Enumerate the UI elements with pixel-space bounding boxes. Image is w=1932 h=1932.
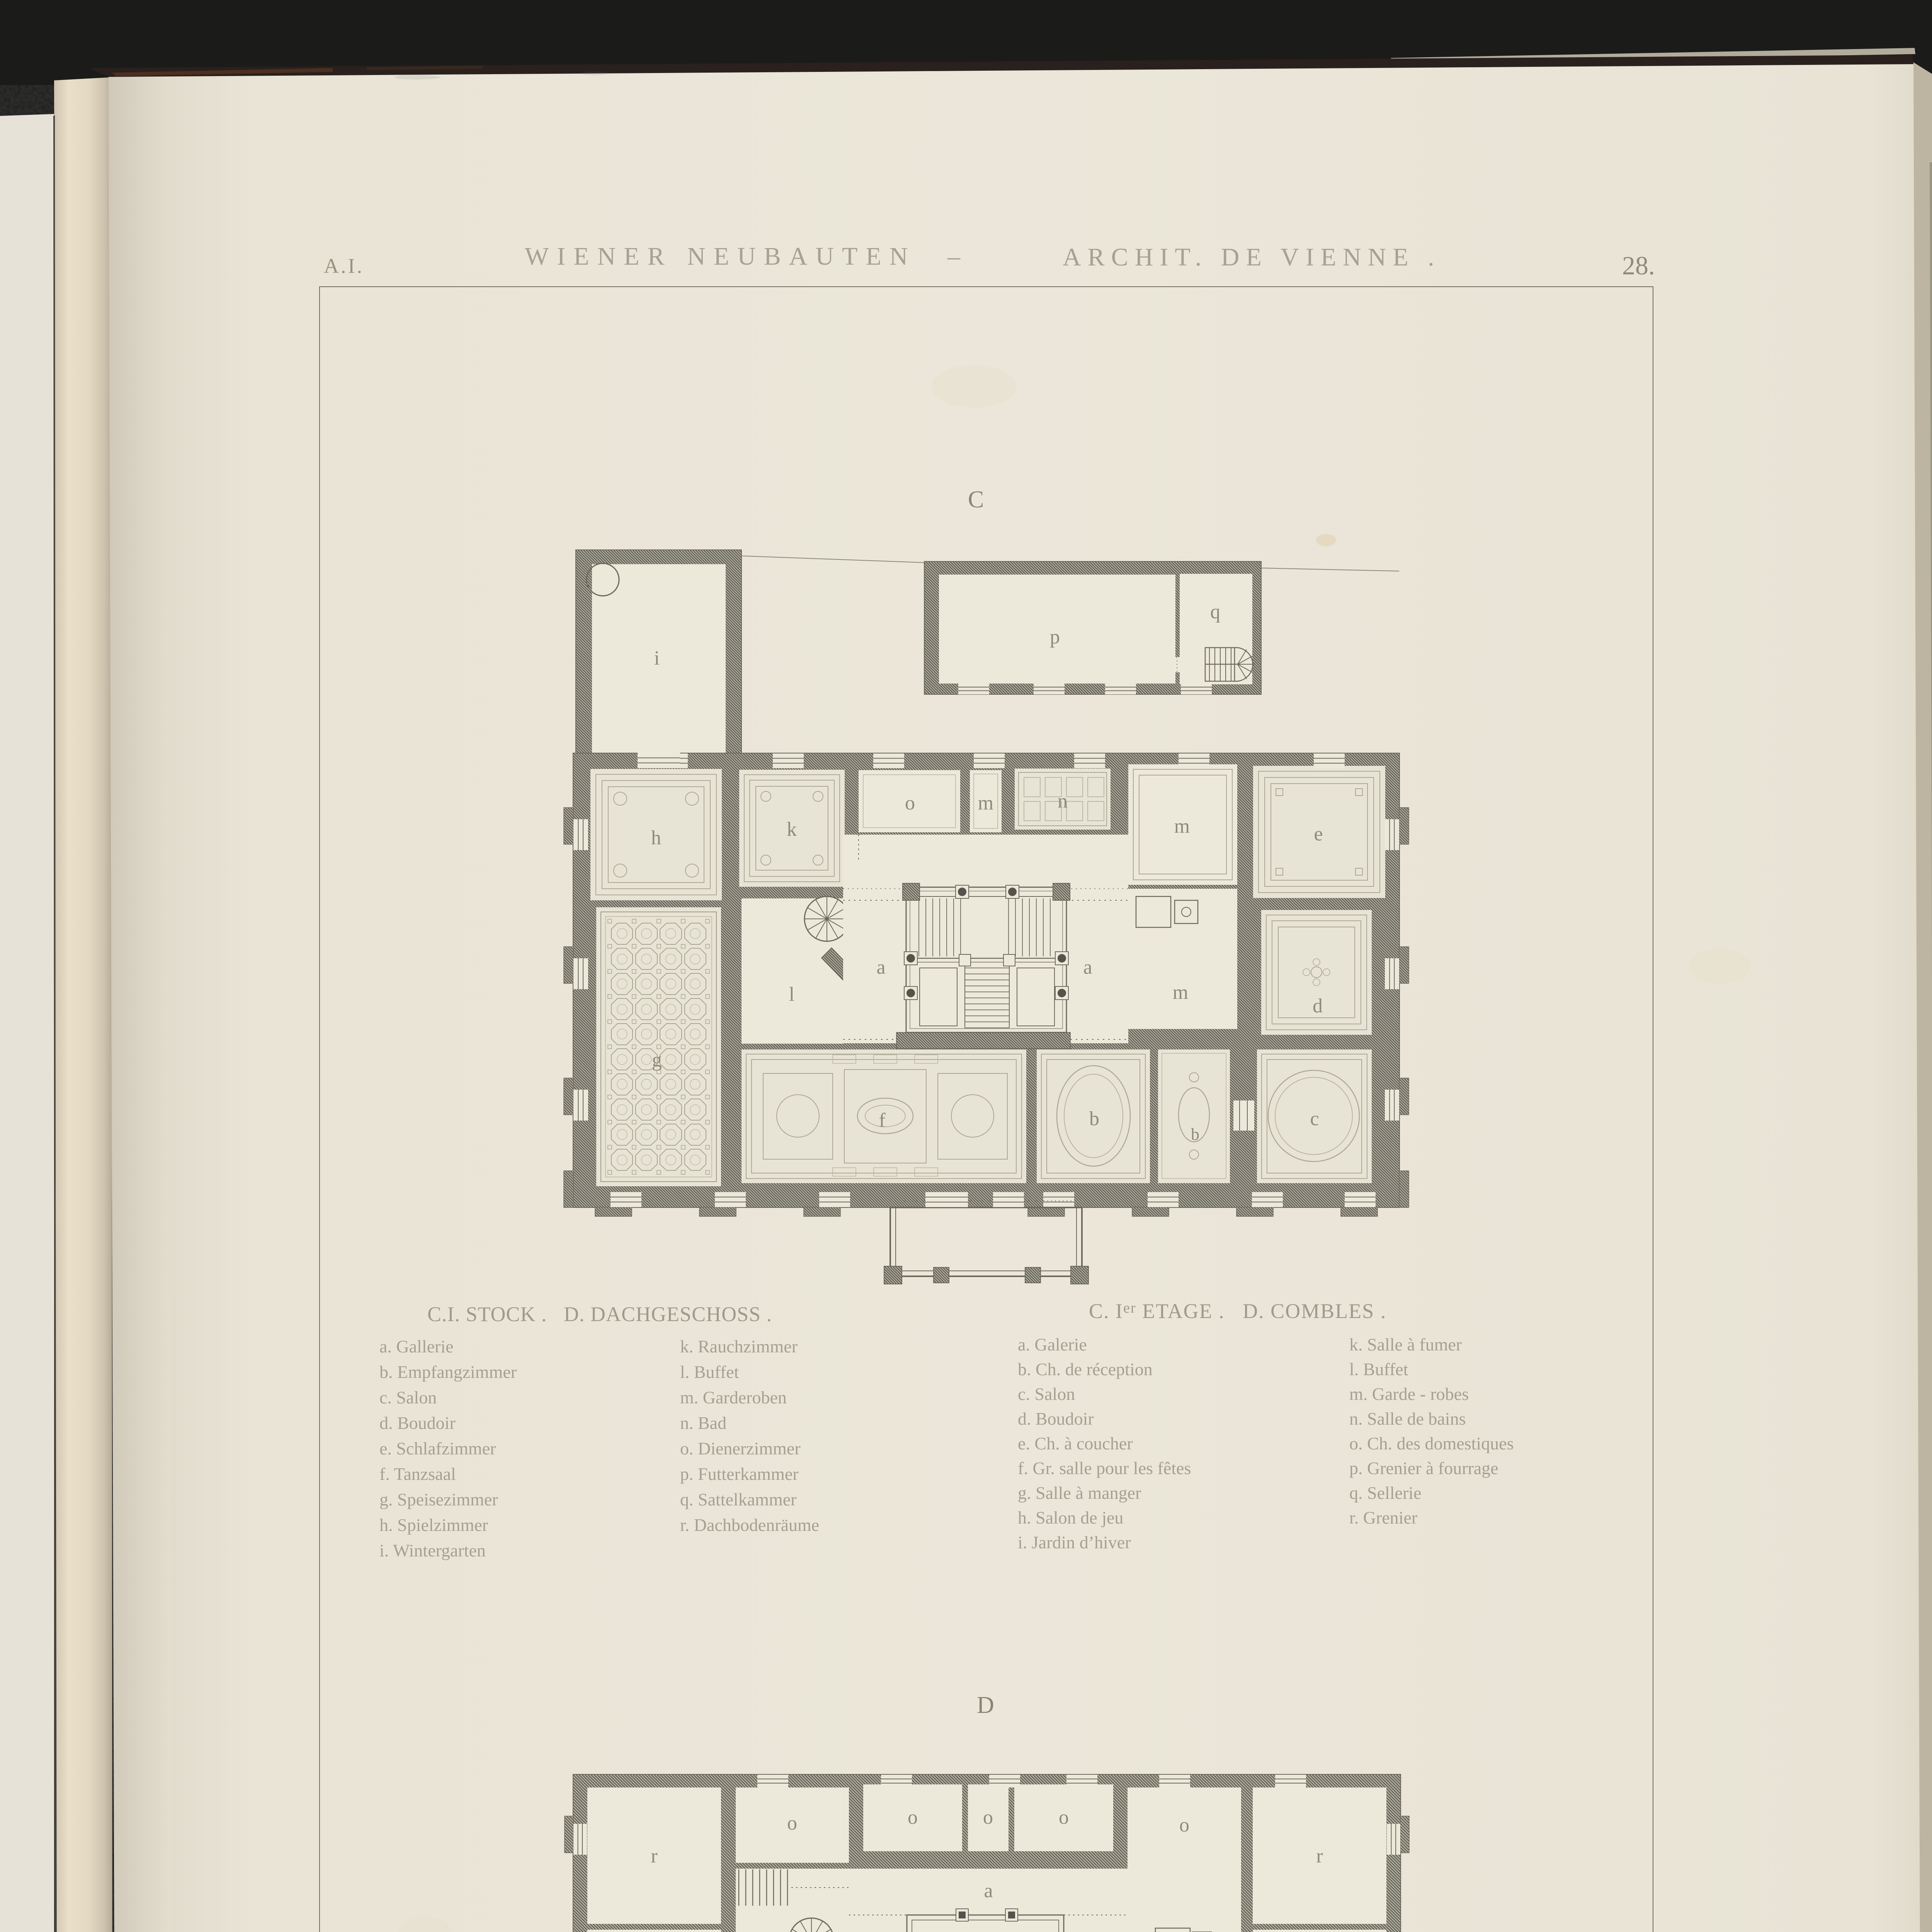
svg-text:o: o	[1059, 1806, 1069, 1828]
svg-text:r: r	[651, 1845, 657, 1867]
svg-text:e: e	[1314, 823, 1323, 845]
svg-text:h: h	[651, 827, 661, 849]
svg-text:b: b	[1089, 1108, 1099, 1130]
svg-text:q: q	[1210, 601, 1220, 623]
svg-text:o: o	[787, 1812, 797, 1834]
svg-text:a: a	[876, 956, 885, 978]
svg-text:m: m	[978, 792, 993, 814]
svg-text:c: c	[1310, 1108, 1319, 1130]
svg-text:p: p	[1050, 626, 1060, 648]
svg-text:o: o	[1179, 1814, 1189, 1836]
svg-text:m: m	[1174, 815, 1190, 837]
svg-text:g: g	[652, 1049, 662, 1071]
svg-text:o: o	[905, 792, 915, 814]
svg-text:a: a	[984, 1880, 993, 1902]
svg-text:m: m	[1173, 981, 1188, 1003]
svg-text:a: a	[1083, 956, 1092, 978]
svg-text:l: l	[789, 983, 794, 1005]
svg-text:d: d	[1313, 995, 1323, 1017]
svg-text:n: n	[1058, 790, 1068, 812]
svg-text:o: o	[983, 1806, 993, 1828]
svg-text:i: i	[654, 647, 660, 669]
svg-text:o: o	[908, 1806, 918, 1828]
svg-text:f: f	[879, 1109, 886, 1131]
svg-text:r: r	[1316, 1845, 1323, 1867]
svg-text:b: b	[1191, 1125, 1199, 1144]
svg-text:k: k	[787, 818, 797, 840]
